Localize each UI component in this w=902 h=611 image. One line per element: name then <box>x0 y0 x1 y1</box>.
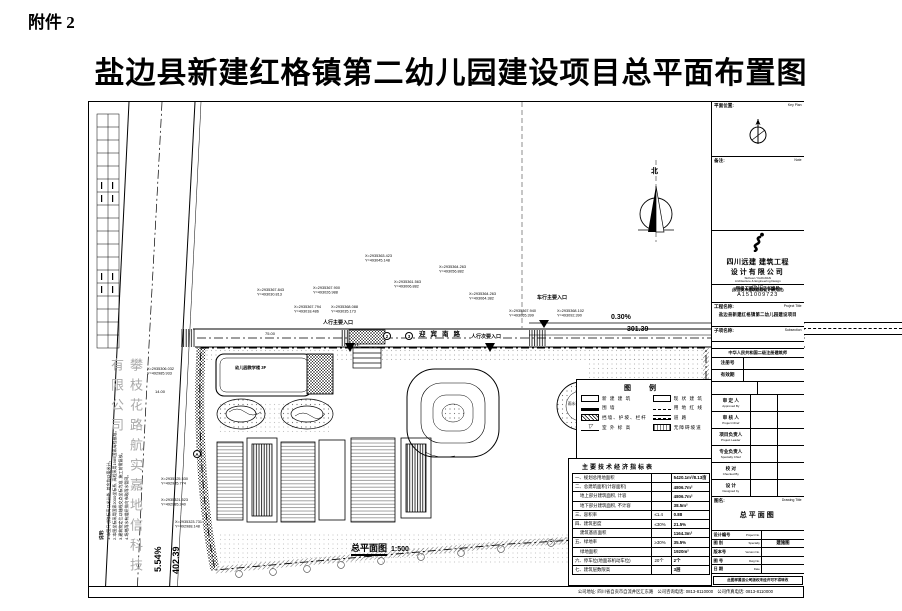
axis-bubble-3: 3 <box>405 332 413 340</box>
sheet-footer: 公司地址: 四川省自贡市自流井区汇东路 公司咨询电话: 0813-8110000… <box>89 586 803 597</box>
copyright-note: 此图样属该公司版权未经许可不得转改 <box>713 576 803 585</box>
page-title: 盐边县新建红格镇第二幼儿园建设项目总平面布置图 <box>0 48 902 92</box>
coordinate-label: X=2935325.530Y=492985.774 <box>161 477 188 486</box>
valid-period-row: 有效期 <box>712 370 804 382</box>
dimension-label: 14.00 <box>155 390 165 395</box>
coordinate-label: X=2935323.731Y=492988.148 <box>175 520 202 529</box>
wall-symbol <box>581 408 599 411</box>
table-row: 绿地面积1920m² <box>573 547 710 556</box>
note-label: 备注: <box>714 158 725 164</box>
north-label: 北 <box>651 168 658 176</box>
signature-row: 审 定 人Approved By <box>712 395 804 412</box>
retaining-slope-symbol <box>581 414 599 421</box>
signature-row: 审 核 人Project Chief <box>712 412 804 429</box>
east-road-length: 301.39 <box>627 326 648 334</box>
keyplan-label: 平面位置: <box>714 103 734 109</box>
certificate-section: 甲级工程设计证书编号 A151009723 <box>712 285 804 304</box>
signature-row: 设 计Designed by <box>712 480 804 497</box>
legend-box: 图 例 新 建 建 筑 现 状 建 筑 围 墙 用 地 红 线 挡墙、护坡、栏杆… <box>576 379 712 459</box>
stamp-row <box>712 382 804 394</box>
coordinate-label: X=2935367.900Y=493026.988 <box>313 286 340 295</box>
north-arrow <box>638 186 674 232</box>
road-symbol <box>653 415 671 420</box>
red-line-symbol <box>653 409 671 410</box>
registered-architect-section: 中华人民共和国二级注册建筑师 注册号 有效期 <box>712 349 804 395</box>
drawing-title-label: 图名: <box>714 498 725 504</box>
company-section: 四川远建 建筑工程 设计有限公司 Sichuan YUANJIAN Archit… <box>712 231 804 285</box>
table-row: 建筑基底面积1164.3m² <box>573 529 710 538</box>
coordinate-label: X=2935321.523Y=492985.240 <box>161 498 188 507</box>
coordinate-label: X=2935364.263Y=493056.882 <box>439 265 466 274</box>
coordinate-label: X=2935364.263Y=493064.382 <box>469 292 496 301</box>
road-line-extension <box>803 334 902 335</box>
east-road-grade: 0.30% <box>611 314 631 322</box>
certificate-label: 甲级工程设计证书编号 <box>712 285 804 293</box>
legend-item: 挡墙、护坡、栏杆 <box>581 414 647 421</box>
table-row: 地下部分建筑面积, 不计容38.5m² <box>573 501 710 510</box>
kindergarten-main-building <box>216 354 333 396</box>
project-name: 盐边县新建红格镇第二幼儿园建设项目 <box>712 312 804 318</box>
indicators-table: 主要技术经济指标表 一、规划总用地面积5420.1m²/8.13亩 二、总建筑面… <box>568 458 714 586</box>
plan-note-line: 4.场地雨水有组织排向市政雨水管网。 <box>124 429 130 540</box>
signature-row: 专业负责人Specialty Chief <box>712 446 804 463</box>
entrance-vehicle-label: 车行主要入口 <box>537 296 567 302</box>
company-logo-icon <box>747 232 769 252</box>
west-road-grade: 5.54% <box>153 546 163 572</box>
drawing-sheet: 攀枝花路航实嘉地信科技有限公司 说明: 1.本图尺寸除标高以米计外, 其余均以毫… <box>88 101 804 598</box>
coordinate-label: X=2935367.940Y=493065.399 <box>509 309 536 318</box>
plan-notes: 说明: 1.本图尺寸除标高以米计外, 其余均以毫米计。 2.本图坐标采用国家20… <box>99 429 130 540</box>
entrance-ped-main-label: 人行主要入口 <box>323 321 353 327</box>
entrance-canopy <box>349 330 385 368</box>
plan-notes-title: 说明: <box>99 530 104 541</box>
coordinate-label: X=2935367.794Y=493018.486 <box>294 305 321 314</box>
date-row: 日 期Date <box>712 565 804 574</box>
registration-number-row: 注册号 <box>712 358 804 370</box>
classroom-wings <box>217 438 431 522</box>
coordinate-label: X=2935368.088Y=493035.173 <box>331 305 358 314</box>
site-level-symbol: ▽ <box>581 424 599 431</box>
legend-item: ▽室 外 标 高 <box>581 424 647 431</box>
road-centerline-extension <box>803 328 902 329</box>
table-row: 二、总建筑面积(计容面积)4806.7m² <box>573 483 710 492</box>
attachment-label: 附件 2 <box>28 8 75 33</box>
plan-scale-title: 总平面图 <box>351 543 387 556</box>
drawing-title-section: 图名:Drawing Title 总平面图 <box>712 497 804 531</box>
legend-item: 道 路 <box>653 414 707 421</box>
axis-bubble-a: A <box>193 450 201 458</box>
legend-item: 用 地 红 线 <box>653 405 707 411</box>
keyplan-locator-icon <box>745 117 771 147</box>
project-title-label: 工程名称: <box>714 304 734 310</box>
signature-row: 项目负责人Project Leader <box>712 429 804 446</box>
drawing-info-section: 设计编号Project No. 图 别Specialty建施图 版本号Versi… <box>712 531 804 586</box>
dimension-label: 75.00 <box>265 332 275 337</box>
ramp-symbol <box>653 424 671 431</box>
table-row: 六、停车位(地面非机动车位)20个2个 <box>573 556 710 565</box>
coordinate-label: X=2935306.032Y=492985.933 <box>147 367 174 376</box>
coordinate-label: X=2935363.423Y=493045.148 <box>365 254 392 263</box>
coordinate-label: X=2935361.563Y=493006.882 <box>394 280 421 289</box>
version-row: 版本号Version No. <box>712 548 804 557</box>
legend-title: 图 例 <box>581 383 707 393</box>
legend-item: 无障碍坡道 <box>653 424 707 431</box>
company-contact-info: 公司地址: 四川省自贡市自流井区汇东路 公司咨询电话: 0813-8110000… <box>578 589 773 595</box>
dwg-no-row: 图 号Dwg No. <box>712 557 804 566</box>
drawing-title-value: 总平面图 <box>712 510 804 520</box>
table-row: 一、规划总用地面积5420.1m²/8.13亩 <box>573 474 710 483</box>
date-cell <box>778 395 804 411</box>
coordinate-label: X=2935367.843Y=493030.813 <box>257 288 284 297</box>
plan-scale-caption: 总平面图1:500 <box>351 538 409 556</box>
table-row: 四、建筑密度≤30%21.5% <box>573 519 710 528</box>
left-signature-strip <box>97 114 119 348</box>
signature-cell <box>751 395 778 411</box>
signature-section: 审 定 人Approved By 审 核 人Project Chief 项目负责… <box>712 395 804 497</box>
coordinate-label: X=2935368.102Y=493092.390 <box>557 309 584 318</box>
legend-item: 围 墙 <box>581 405 647 411</box>
title-block: 平面位置:Key Plan 备注:Note 四川远建 建筑工程 设计有限公司 <box>711 102 804 586</box>
page: 附件 2 盐边县新建红格镇第二幼儿园建设项目总平面布置图 <box>0 0 902 611</box>
sub-project-label: 子项名称: <box>714 328 734 334</box>
existing-building-symbol <box>653 395 671 402</box>
legend-item: 新 建 建 筑 <box>581 395 647 402</box>
indicators-title: 主要技术经济指标表 <box>572 461 710 473</box>
building-label: 幼儿园教学楼 3F <box>235 366 266 371</box>
specialty-row: 图 别Specialty建施图 <box>712 540 804 549</box>
company-name-cn1: 四川远建 建筑工程 <box>712 257 804 267</box>
certificate-number: A151009723 <box>712 292 804 298</box>
registered-architect-header: 中华人民共和国二级注册建筑师 <box>712 349 804 358</box>
sub-project-section: 子项名称:Subsection <box>712 327 804 342</box>
axis-bubble-2: 2 <box>383 332 391 340</box>
road-line-extension <box>803 322 902 323</box>
table-row: 五、绿地率≥30%35.5% <box>573 538 710 547</box>
plan-scale-value: 1:500 <box>391 546 409 553</box>
table-row: 地上部分建筑面积, 计容4806.7m² <box>573 492 710 501</box>
note-section: 备注:Note <box>712 157 804 231</box>
road-name: 迎宾南路 <box>419 331 465 338</box>
table-row: 三、容积率≤1.40.88 <box>573 510 710 519</box>
new-building-symbol <box>581 395 599 402</box>
project-no-row: 设计编号Project No. <box>712 531 804 540</box>
signature-row: 校 对Checked By <box>712 463 804 480</box>
table-row: 七、建筑层数限高3层 <box>573 565 710 574</box>
entrance-ped-secondary-label: 人行次要入口 <box>471 335 501 341</box>
keyplan-section: 平面位置:Key Plan <box>712 102 804 157</box>
project-name-section: 工程名称:Project Title 盐边县新建红格镇第二幼儿园建设项目 <box>712 303 804 327</box>
legend-item: 现 状 建 筑 <box>653 395 707 402</box>
west-road-length: 402.39 <box>171 546 181 574</box>
plan-note-line: 2.本图坐标采用国家2000坐标系, 高程采用1985国家高程基准。 <box>112 429 118 540</box>
